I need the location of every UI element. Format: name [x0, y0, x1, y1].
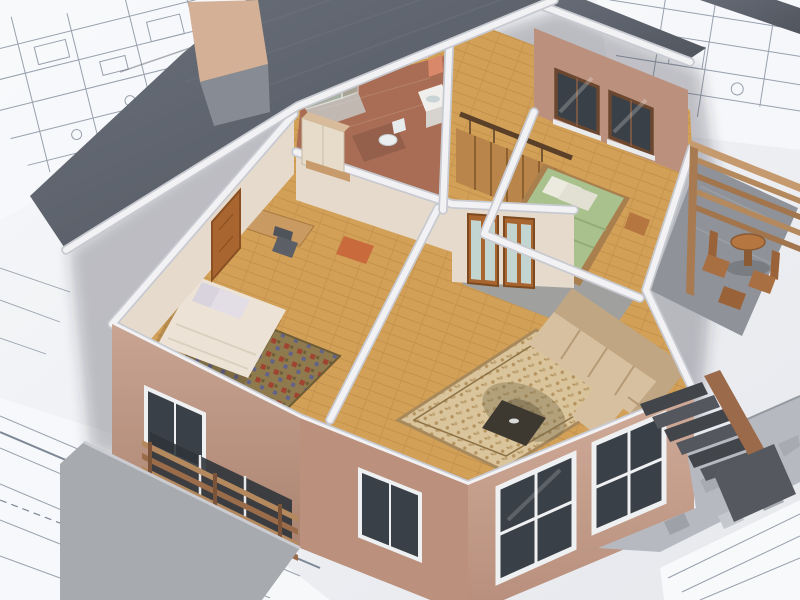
architectural-render: 3D architectural cutaway rendering of a …	[0, 0, 800, 600]
render-canvas	[0, 0, 800, 600]
